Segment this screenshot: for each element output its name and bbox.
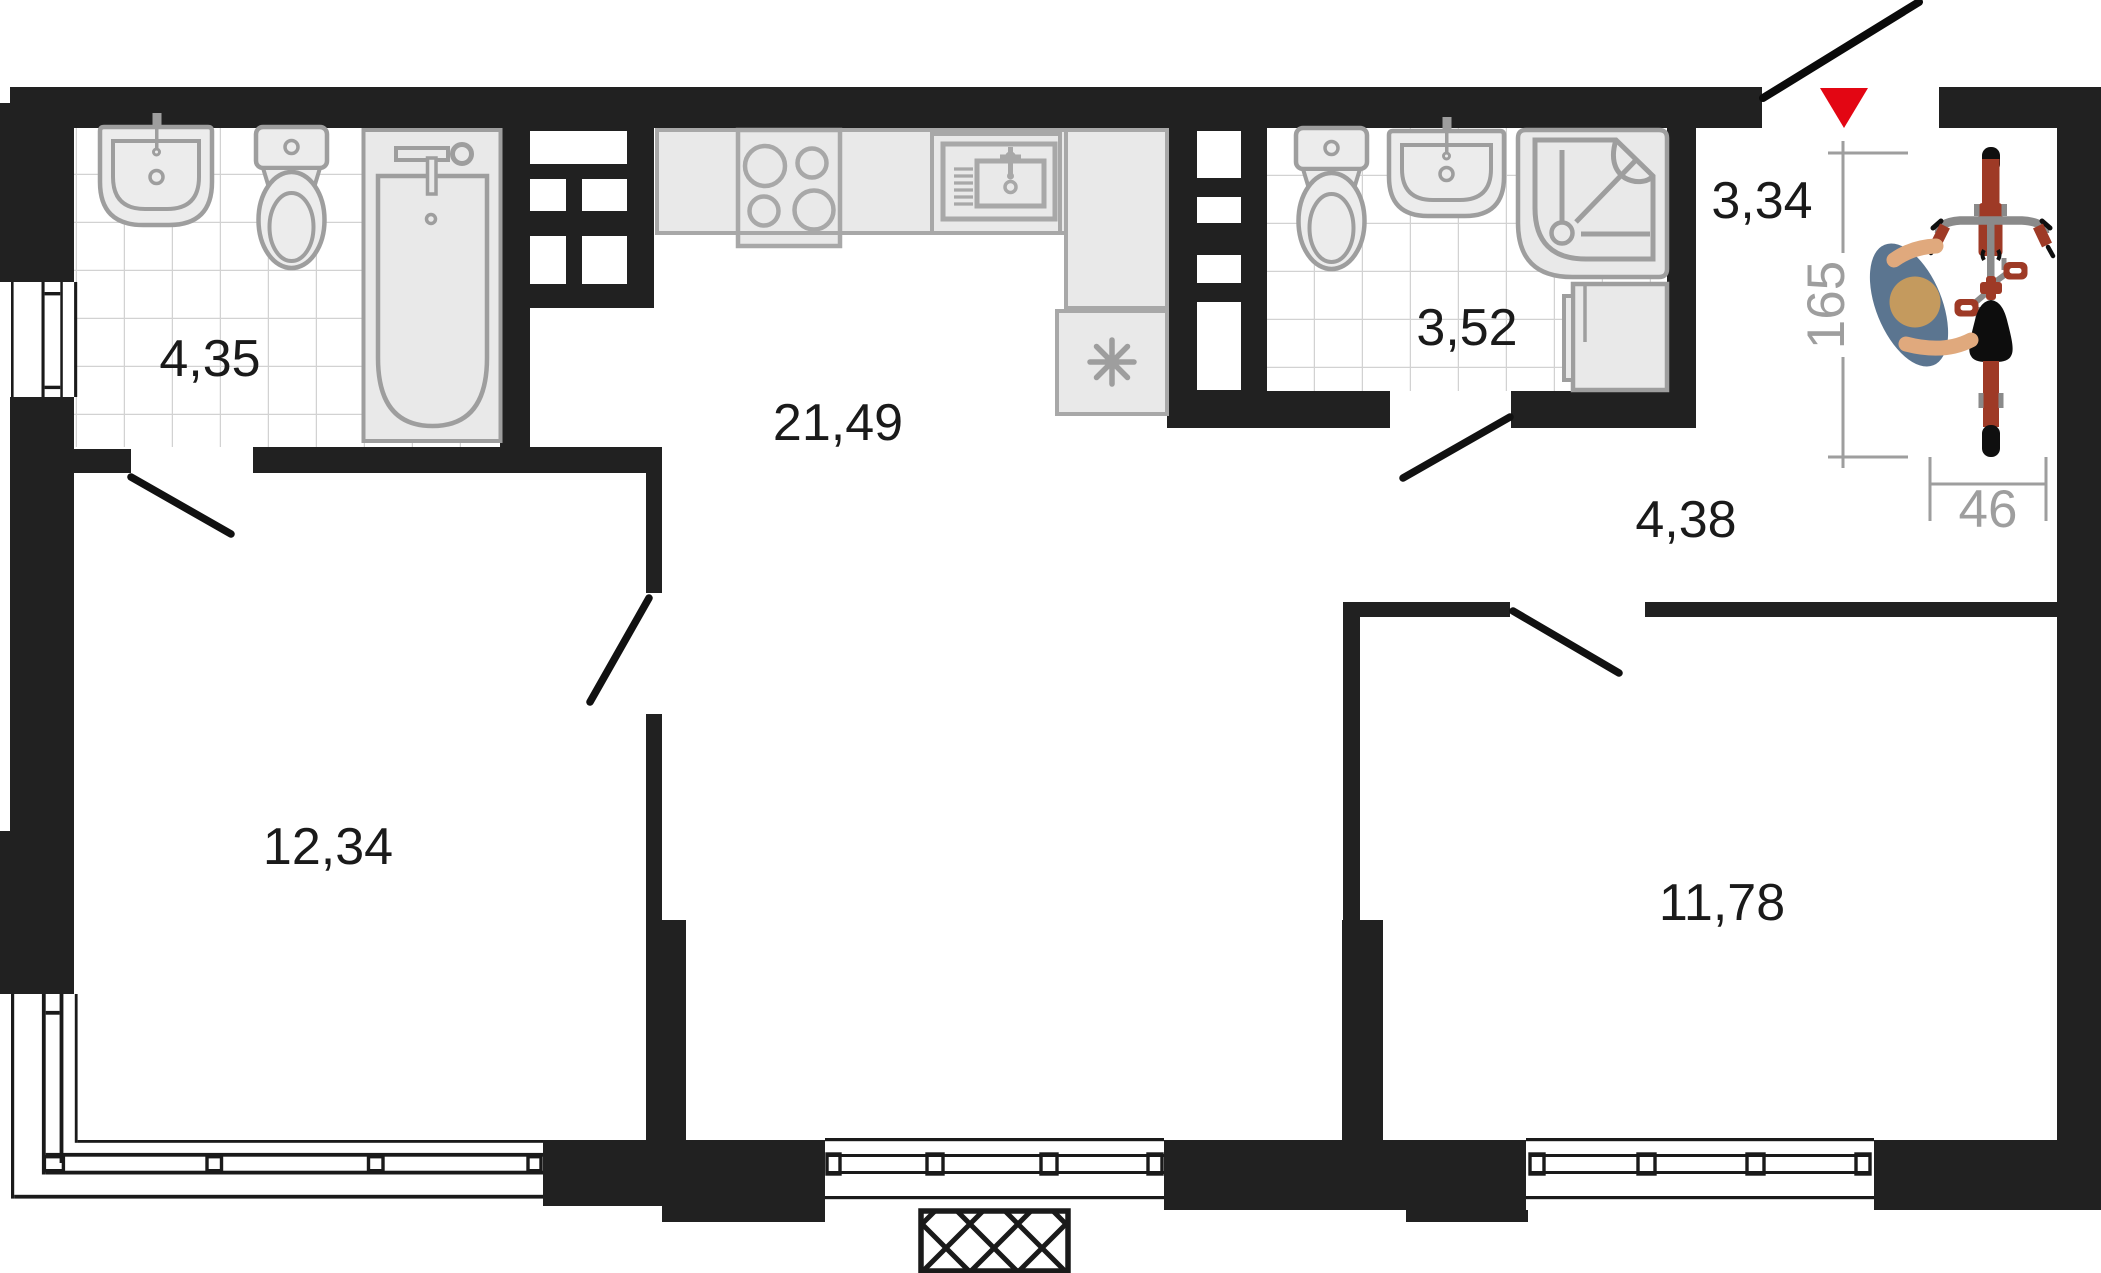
svg-text:46: 46 — [1959, 480, 2018, 539]
svg-text:3,34: 3,34 — [1711, 172, 1812, 230]
svg-text:4,38: 4,38 — [1635, 491, 1736, 549]
svg-text:12,34: 12,34 — [263, 818, 393, 876]
svg-text:3,52: 3,52 — [1416, 299, 1517, 357]
svg-text:21,49: 21,49 — [773, 394, 903, 452]
svg-text:165: 165 — [1797, 261, 1856, 349]
svg-text:4,35: 4,35 — [159, 330, 260, 388]
svg-text:11,78: 11,78 — [1659, 874, 1785, 932]
